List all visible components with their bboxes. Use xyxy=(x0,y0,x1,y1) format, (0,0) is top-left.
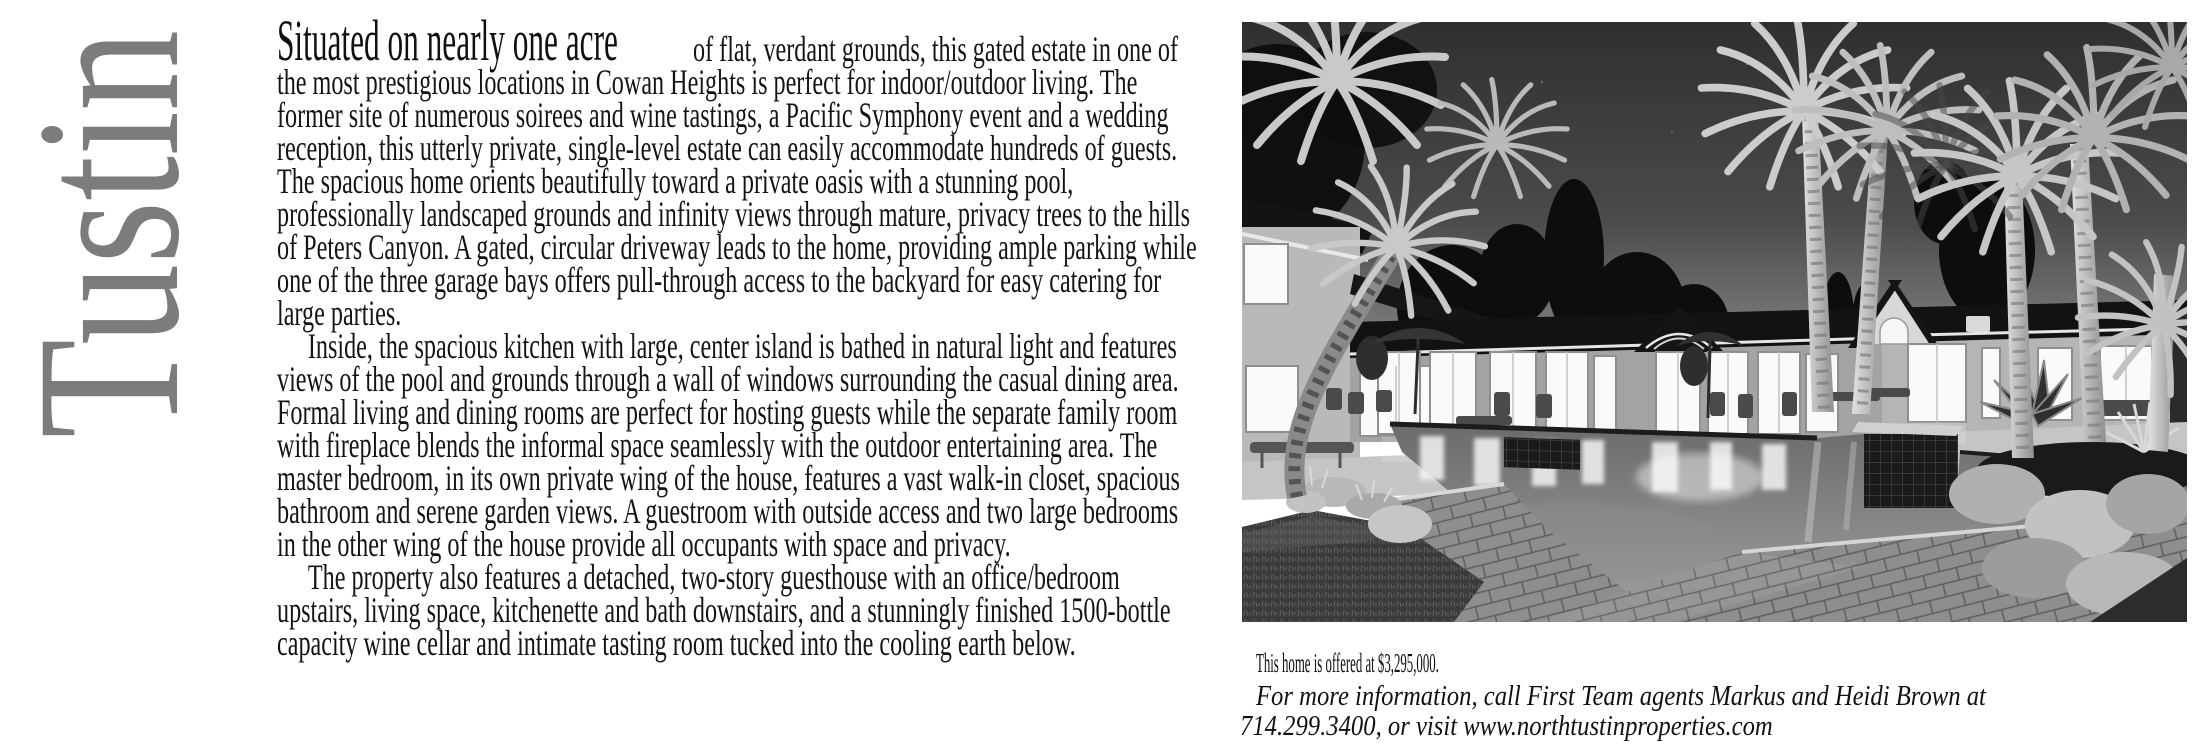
article-body: of flat, verdant grounds, this gated est… xyxy=(277,33,1198,660)
city-vertical-label: Tustin xyxy=(14,6,234,476)
pool-light-glow xyxy=(1636,453,1764,501)
article-paragraph-1: of flat, verdant grounds, this gated est… xyxy=(277,33,1198,330)
offer-price-text: This home is offered at $3,295,000. xyxy=(1256,648,1439,678)
offer-line: This home is offered at $3,295,000. xyxy=(1256,648,2200,678)
estate-photo xyxy=(1242,22,2187,622)
city-label-text: Tustin xyxy=(14,30,222,438)
photo-caption: This home is offered at $3,295,000. For … xyxy=(1240,648,2200,741)
article-paragraph-2: Inside, the spacious kitchen with large,… xyxy=(277,330,1198,561)
contact-text-2: 714.299.3400, or visit www.northtustinpr… xyxy=(1240,711,1773,741)
contact-line-2: 714.299.3400, or visit www.northtustinpr… xyxy=(1240,711,2200,741)
contact-line-1: For more information, call First Team ag… xyxy=(1256,681,2200,711)
contact-text-1: For more information, call First Team ag… xyxy=(1256,681,1986,711)
magazine-page: Tustin Situated on nearly one acre of fl… xyxy=(0,0,2208,756)
article-paragraph-3: The property also features a detached, t… xyxy=(277,561,1198,660)
